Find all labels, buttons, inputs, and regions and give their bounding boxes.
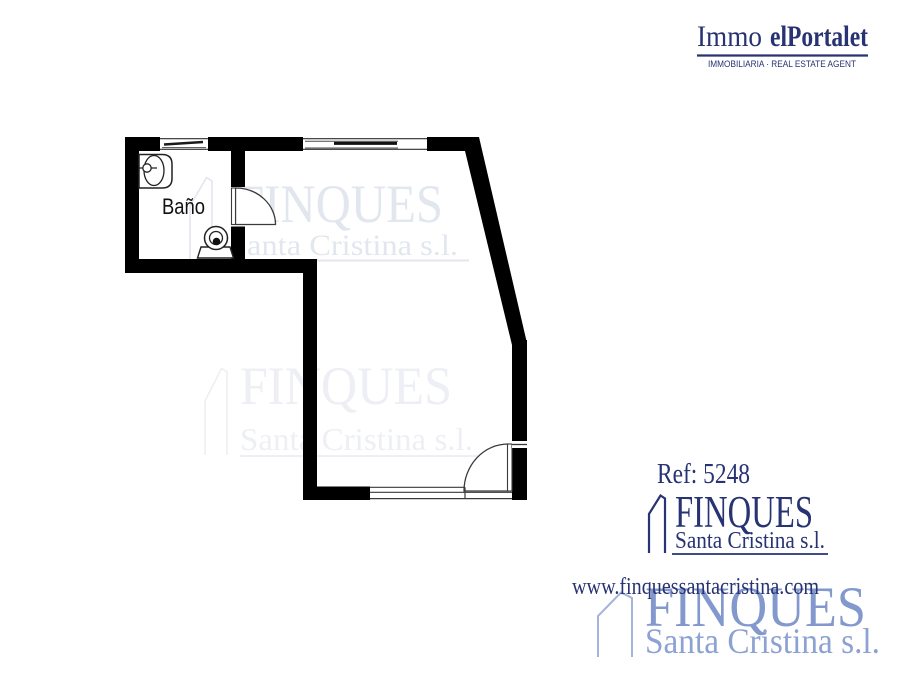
- agency-brand-name: elPortalet: [770, 20, 868, 53]
- watermark-lower: FINQUES Santa Cristina s.l.: [205, 356, 478, 457]
- website-url: www.finquessantacristina.com: [572, 574, 819, 600]
- wall-bathroom-bottom: [125, 259, 317, 273]
- door-leaf: [508, 444, 513, 491]
- wall-bathroom-partition-upper: [231, 151, 245, 187]
- room-label-bathroom: Baño: [162, 194, 205, 219]
- wall-right: [512, 340, 527, 500]
- sink-tap: [143, 164, 151, 172]
- door-leaf: [232, 188, 236, 225]
- wall-bottom: [303, 487, 370, 501]
- wall-top-middle: [208, 137, 303, 151]
- window-bathroom: [160, 137, 208, 152]
- watermark-subtitle: Santa Cristina s.l.: [229, 229, 458, 262]
- finques-logo: FINQUES Santa Cristina s.l.: [649, 487, 828, 554]
- floorplan-page: FINQUES Santa Cristina s.l. FINQUES Sant…: [0, 0, 900, 675]
- window-main-room: [303, 137, 427, 152]
- agency-brand-prefix: Immo: [697, 20, 762, 53]
- watermark-subtitle: Santa Cristina s.l.: [645, 621, 880, 661]
- finques-house-icon: [598, 593, 632, 658]
- toilet-drain: [213, 238, 221, 246]
- agency-logo: Immo elPortalet IMMOBILIARIA · REAL ESTA…: [697, 20, 868, 69]
- floorplan-canvas: FINQUES Santa Cristina s.l. FINQUES Sant…: [0, 0, 900, 675]
- agency-tagline: IMMOBILIARIA · REAL ESTATE AGENT: [708, 59, 857, 69]
- property-reference: Ref: 5248: [657, 459, 750, 490]
- watermark-subtitle: Santa Cristina s.l.: [240, 421, 473, 457]
- reference-number: Ref: 5248: [657, 459, 750, 490]
- finques-house-icon: [205, 369, 227, 456]
- finques-house-icon: [649, 496, 665, 554]
- finques-brand-subtitle: Santa Cristina s.l.: [675, 528, 825, 554]
- wall-diagonal: [465, 137, 527, 345]
- sink-icon: [139, 155, 172, 189]
- watermark-brand: FINQUES: [240, 356, 452, 416]
- wall-lower-left: [303, 259, 317, 500]
- wall-left: [125, 137, 139, 273]
